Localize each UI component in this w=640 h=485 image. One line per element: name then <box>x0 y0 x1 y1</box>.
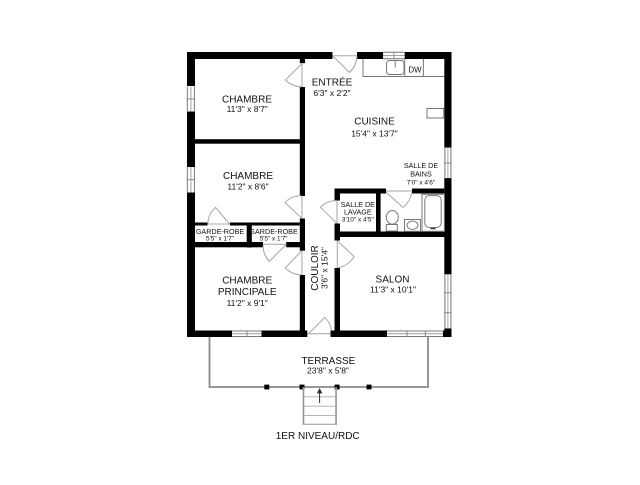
svg-text:11'2" x 9'1": 11'2" x 9'1" <box>227 298 268 308</box>
svg-text:ENTRÉE: ENTRÉE <box>312 75 353 88</box>
svg-text:CHAMBRE: CHAMBRE <box>222 275 272 286</box>
svg-text:3'6" x 15'4": 3'6" x 15'4" <box>320 247 330 289</box>
svg-text:CUISINE: CUISINE <box>354 116 395 127</box>
svg-text:15'4" x 13'7": 15'4" x 13'7" <box>351 128 398 138</box>
svg-text:5'5" x 1'7": 5'5" x 1'7" <box>260 236 288 243</box>
svg-text:5'5" x 1'7": 5'5" x 1'7" <box>206 236 234 243</box>
svg-text:23'8" x 5'8": 23'8" x 5'8" <box>307 366 349 376</box>
svg-text:DW: DW <box>409 65 423 74</box>
svg-text:1ER NIVEAU/RDC: 1ER NIVEAU/RDC <box>276 431 360 442</box>
svg-text:7'0" x 4'6": 7'0" x 4'6" <box>407 179 436 186</box>
svg-text:3'10" x 4'5": 3'10" x 4'5" <box>342 216 375 223</box>
svg-text:6'3" x 2'2": 6'3" x 2'2" <box>313 88 350 98</box>
svg-text:PRINCIPALE: PRINCIPALE <box>218 287 277 298</box>
svg-text:LAVAGE: LAVAGE <box>344 207 372 216</box>
svg-text:11'2" x 8'6": 11'2" x 8'6" <box>227 181 268 191</box>
svg-text:BAINS: BAINS <box>410 169 432 178</box>
svg-text:11'3" x 8'7": 11'3" x 8'7" <box>227 104 268 114</box>
svg-text:11'3" x 10'1": 11'3" x 10'1" <box>370 285 416 295</box>
